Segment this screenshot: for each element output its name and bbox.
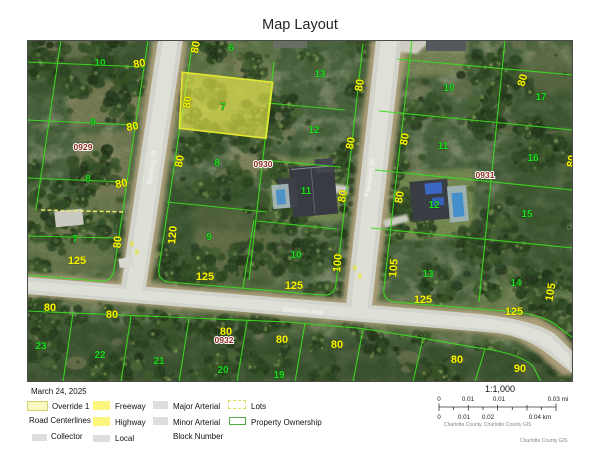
svg-text:90: 90 bbox=[514, 363, 526, 375]
svg-text:80: 80 bbox=[44, 302, 56, 314]
svg-text:16: 16 bbox=[527, 153, 539, 164]
svg-text:80: 80 bbox=[111, 235, 124, 248]
svg-text:15: 15 bbox=[521, 209, 533, 220]
svg-text:8: 8 bbox=[214, 158, 220, 169]
svg-text:9: 9 bbox=[90, 117, 96, 128]
svg-text:23: 23 bbox=[35, 341, 47, 352]
svg-text:0929: 0929 bbox=[74, 142, 93, 152]
svg-text:22: 22 bbox=[94, 350, 106, 361]
svg-text:14: 14 bbox=[510, 278, 522, 289]
svg-text:100: 100 bbox=[331, 253, 345, 272]
svg-text:80: 80 bbox=[398, 132, 412, 146]
svg-text:105: 105 bbox=[387, 258, 401, 277]
svg-text:80: 80 bbox=[132, 57, 146, 71]
svg-text:125: 125 bbox=[68, 255, 86, 267]
svg-text:80: 80 bbox=[189, 40, 203, 54]
svg-text:80: 80 bbox=[114, 177, 128, 191]
svg-text:0: 0 bbox=[437, 396, 441, 403]
svg-text:125: 125 bbox=[414, 294, 432, 306]
svg-text:80: 80 bbox=[565, 154, 573, 168]
svg-text:125: 125 bbox=[196, 271, 214, 283]
svg-text:11: 11 bbox=[301, 186, 312, 197]
svg-text:20: 20 bbox=[217, 365, 229, 376]
svg-text:80: 80 bbox=[344, 136, 358, 150]
svg-text:0: 0 bbox=[437, 414, 441, 421]
svg-text:0.01: 0.01 bbox=[462, 396, 475, 403]
svg-text:80: 80 bbox=[173, 154, 187, 168]
svg-text:80: 80 bbox=[181, 95, 195, 109]
svg-text:0.02: 0.02 bbox=[482, 414, 495, 421]
svg-text:80: 80 bbox=[336, 189, 350, 203]
svg-text:0.04 km: 0.04 km bbox=[529, 414, 551, 421]
svg-text:13: 13 bbox=[314, 69, 326, 80]
svg-text:8: 8 bbox=[85, 174, 91, 185]
svg-text:19: 19 bbox=[273, 370, 285, 381]
svg-text:0930: 0930 bbox=[254, 159, 273, 169]
svg-text:80: 80 bbox=[451, 354, 463, 366]
svg-text:9: 9 bbox=[206, 232, 212, 243]
svg-text:12: 12 bbox=[308, 125, 320, 136]
svg-text:10: 10 bbox=[290, 250, 302, 261]
svg-text:0931: 0931 bbox=[476, 170, 495, 180]
svg-text:80: 80 bbox=[393, 190, 407, 204]
svg-text:0.03 mi: 0.03 mi bbox=[548, 396, 569, 403]
svg-text:80: 80 bbox=[106, 309, 118, 321]
svg-text:0.01: 0.01 bbox=[458, 414, 471, 421]
svg-text:80: 80 bbox=[125, 120, 139, 134]
svg-text:80: 80 bbox=[353, 78, 367, 92]
svg-text:0932: 0932 bbox=[215, 335, 234, 345]
svg-text:11: 11 bbox=[438, 141, 449, 152]
svg-text:7: 7 bbox=[72, 234, 78, 245]
svg-text:21: 21 bbox=[153, 356, 165, 367]
svg-text:125: 125 bbox=[505, 306, 523, 318]
svg-text:80: 80 bbox=[276, 334, 288, 346]
svg-text:6: 6 bbox=[228, 43, 234, 54]
svg-text:12: 12 bbox=[428, 200, 440, 211]
svg-text:80: 80 bbox=[331, 339, 343, 351]
svg-text:125: 125 bbox=[285, 280, 303, 292]
svg-text:7: 7 bbox=[220, 102, 226, 113]
svg-text:10: 10 bbox=[443, 83, 455, 94]
svg-text:0.01: 0.01 bbox=[493, 396, 506, 403]
svg-text:10: 10 bbox=[94, 58, 106, 69]
svg-text:13: 13 bbox=[422, 269, 434, 280]
svg-text:17: 17 bbox=[535, 92, 547, 103]
svg-text:120: 120 bbox=[166, 225, 180, 244]
